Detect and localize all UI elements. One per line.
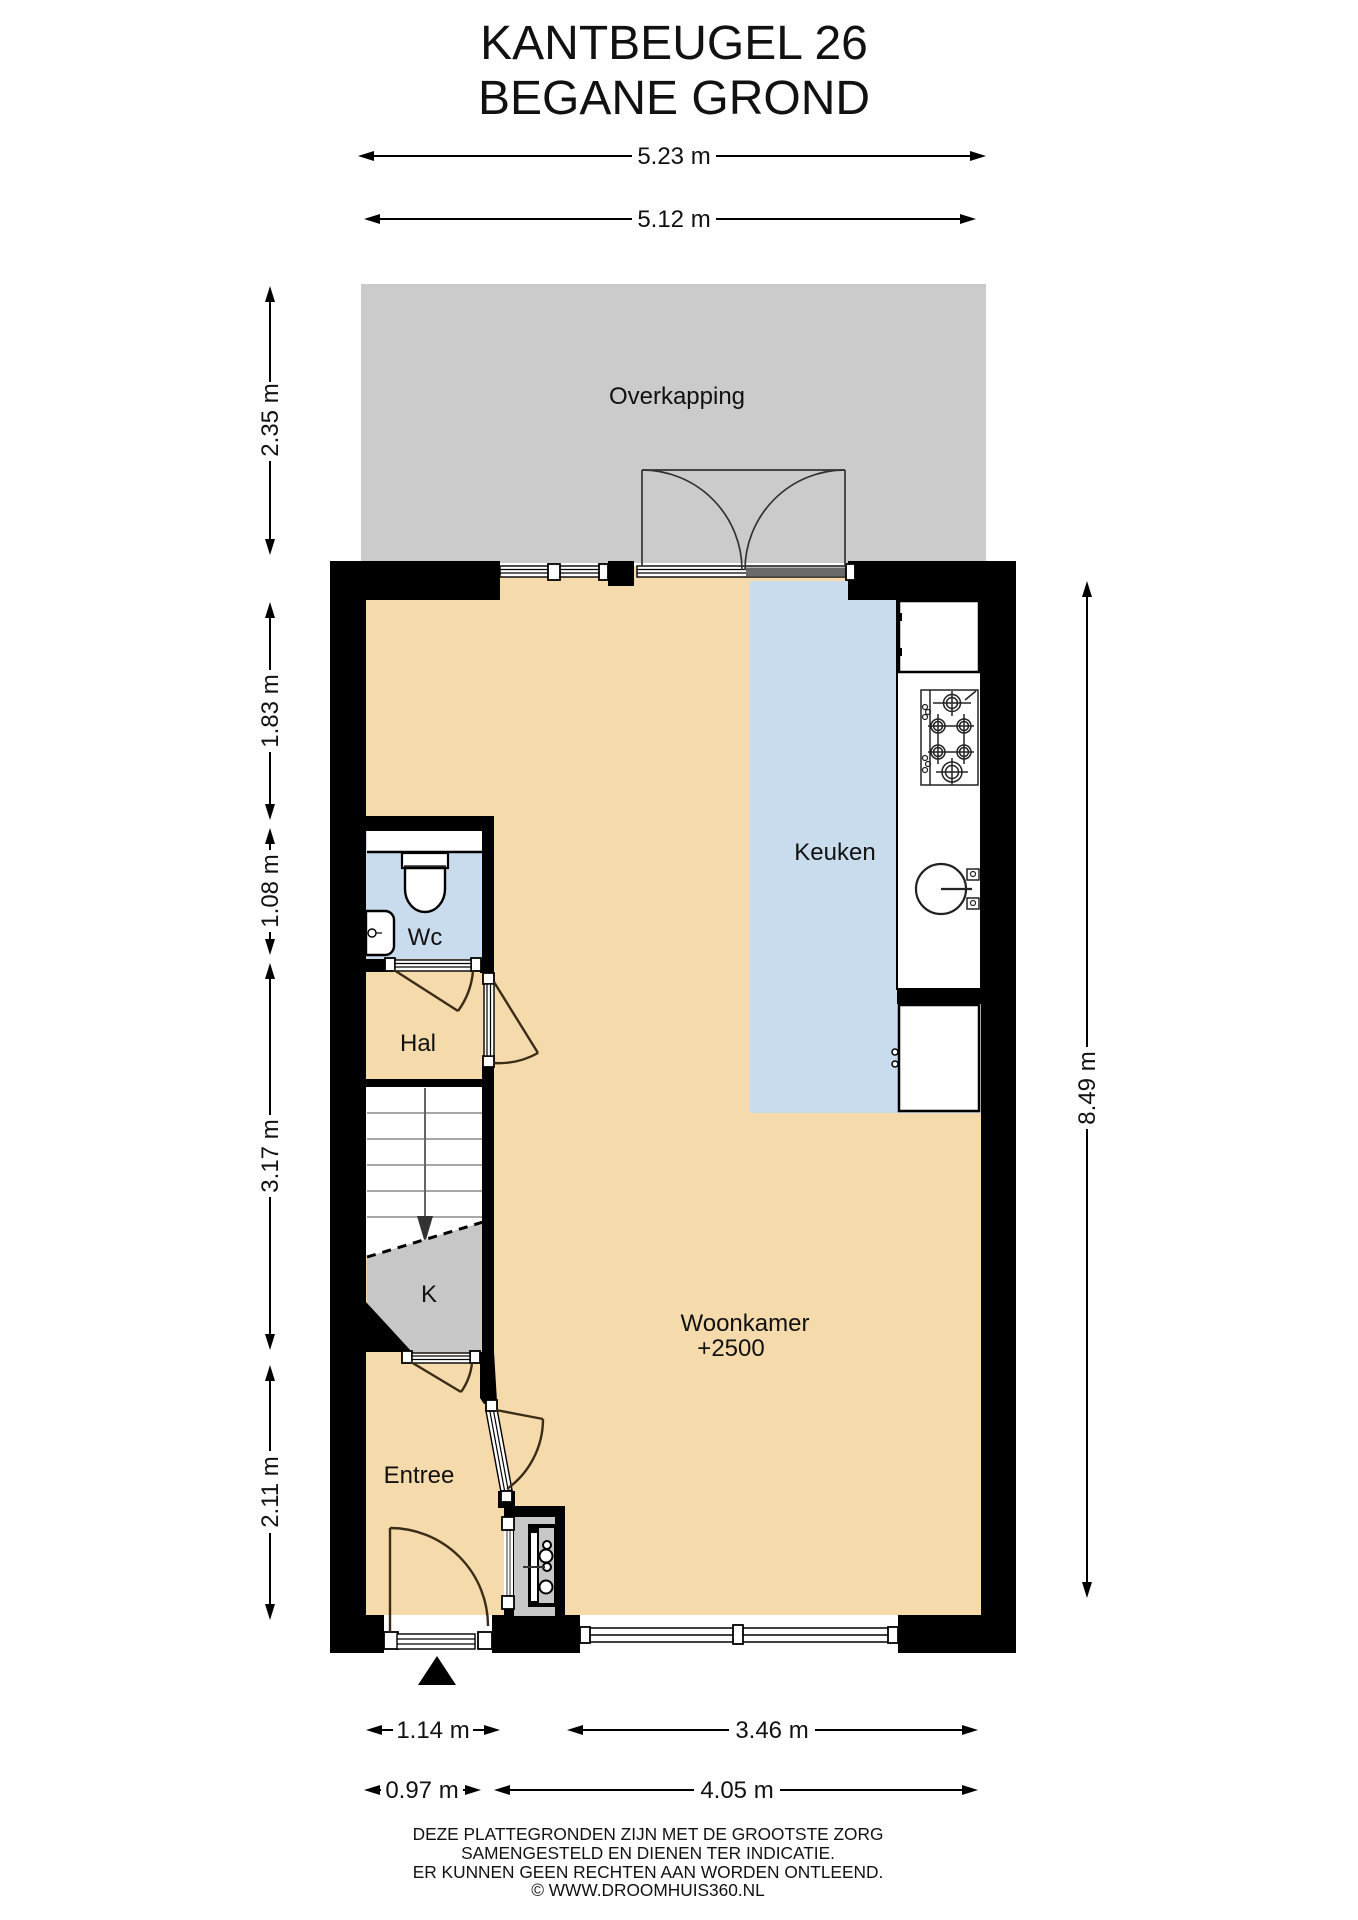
svg-text:2.11 m: 2.11 m bbox=[257, 1456, 284, 1528]
svg-text:1.08 m: 1.08 m bbox=[257, 854, 284, 927]
svg-text:KANTBEUGEL 26: KANTBEUGEL 26 bbox=[480, 17, 868, 70]
svg-text:ER KUNNEN GEEN RECHTEN AAN WOR: ER KUNNEN GEEN RECHTEN AAN WORDEN ONTLEE… bbox=[413, 1862, 884, 1882]
svg-text:Overkapping: Overkapping bbox=[609, 383, 745, 410]
svg-text:2.35 m: 2.35 m bbox=[257, 383, 284, 456]
svg-text:Woonkamer: Woonkamer bbox=[681, 1310, 810, 1337]
svg-text:Hal: Hal bbox=[400, 1030, 436, 1057]
svg-text:4.05 m: 4.05 m bbox=[700, 1777, 773, 1804]
svg-text:+2500: +2500 bbox=[697, 1335, 764, 1362]
svg-text:K: K bbox=[421, 1281, 437, 1308]
svg-text:5.12 m: 5.12 m bbox=[637, 206, 710, 233]
svg-text:BEGANE GROND: BEGANE GROND bbox=[478, 72, 870, 125]
svg-text:1.83 m: 1.83 m bbox=[257, 674, 284, 747]
svg-text:Entree: Entree bbox=[384, 1462, 455, 1489]
svg-text:5.23 m: 5.23 m bbox=[637, 143, 710, 170]
svg-text:Wc: Wc bbox=[408, 924, 443, 951]
svg-text:SAMENGESTELD EN DIENEN TER IND: SAMENGESTELD EN DIENEN TER INDICATIE. bbox=[461, 1843, 835, 1863]
svg-text:DEZE PLATTEGRONDEN ZIJN MET DE: DEZE PLATTEGRONDEN ZIJN MET DE GROOTSTE … bbox=[413, 1824, 884, 1844]
svg-text:3.17 m: 3.17 m bbox=[257, 1119, 284, 1192]
svg-text:1.14 m: 1.14 m bbox=[396, 1717, 469, 1744]
svg-text:3.46 m: 3.46 m bbox=[735, 1717, 808, 1744]
svg-text:Keuken: Keuken bbox=[794, 839, 875, 866]
svg-text:8.49 m: 8.49 m bbox=[1074, 1051, 1101, 1124]
svg-text:0.97 m: 0.97 m bbox=[385, 1777, 458, 1804]
svg-text:© WWW.DROOMHUIS360.NL: © WWW.DROOMHUIS360.NL bbox=[531, 1880, 765, 1900]
